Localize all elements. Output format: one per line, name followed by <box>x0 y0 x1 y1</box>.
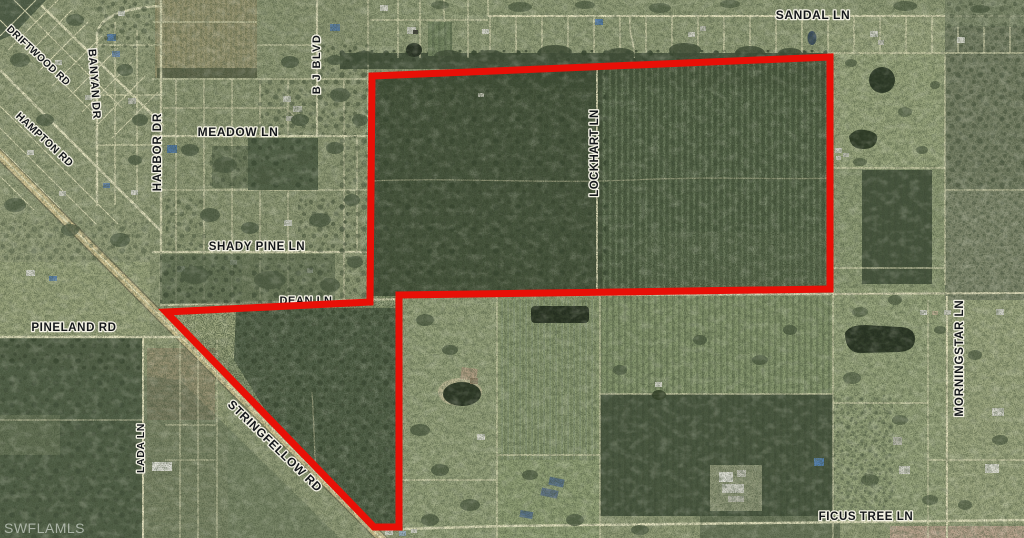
svg-text:PINELAND RD: PINELAND RD <box>31 322 116 334</box>
svg-text:B J BLVD: B J BLVD <box>311 34 323 95</box>
svg-text:SHADY PINE LN: SHADY PINE LN <box>209 241 305 253</box>
svg-text:LADA LN: LADA LN <box>135 423 147 473</box>
svg-text:MORNINGSTAR LN: MORNINGSTAR LN <box>954 299 966 416</box>
svg-text:LOCKHART LN: LOCKHART LN <box>589 109 601 196</box>
svg-text:SANDAL LN: SANDAL LN <box>776 8 851 22</box>
svg-text:MEADOW LN: MEADOW LN <box>198 125 279 139</box>
svg-text:SWFLAMLS: SWFLAMLS <box>4 520 85 536</box>
svg-text:HARBOR DR: HARBOR DR <box>152 113 164 191</box>
svg-text:FICUS TREE LN: FICUS TREE LN <box>819 511 914 523</box>
